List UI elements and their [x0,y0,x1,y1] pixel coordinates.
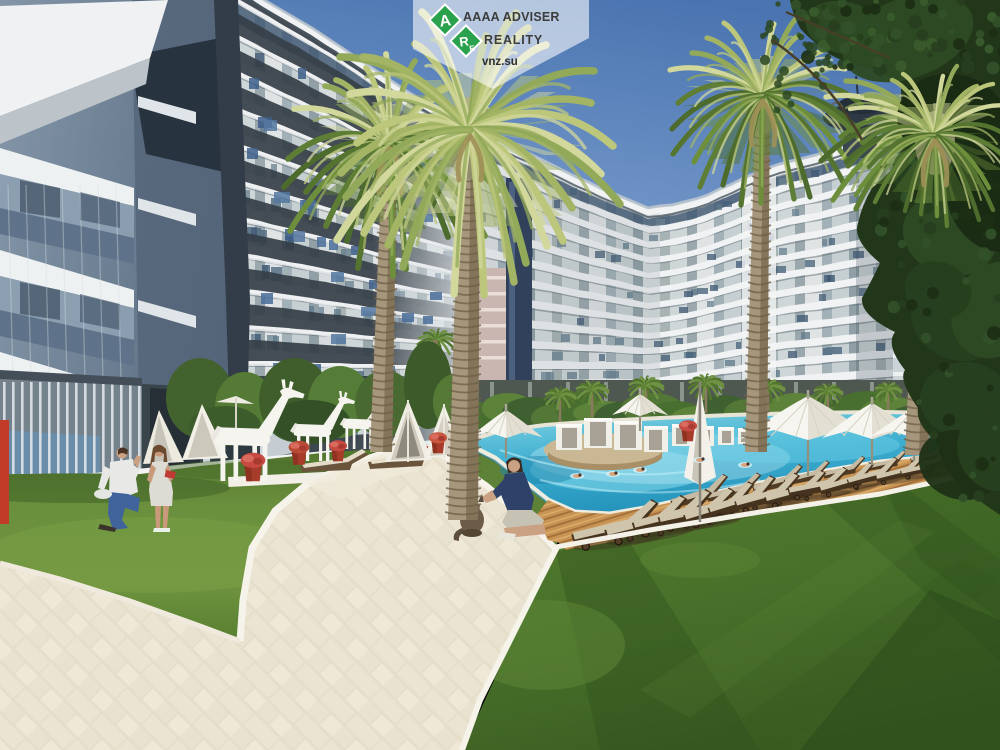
svg-text:vnz.su: vnz.su [482,56,518,68]
svg-text:AAAA ADVISER: AAAA ADVISER [463,10,560,24]
svg-text:REALITY: REALITY [484,33,543,47]
